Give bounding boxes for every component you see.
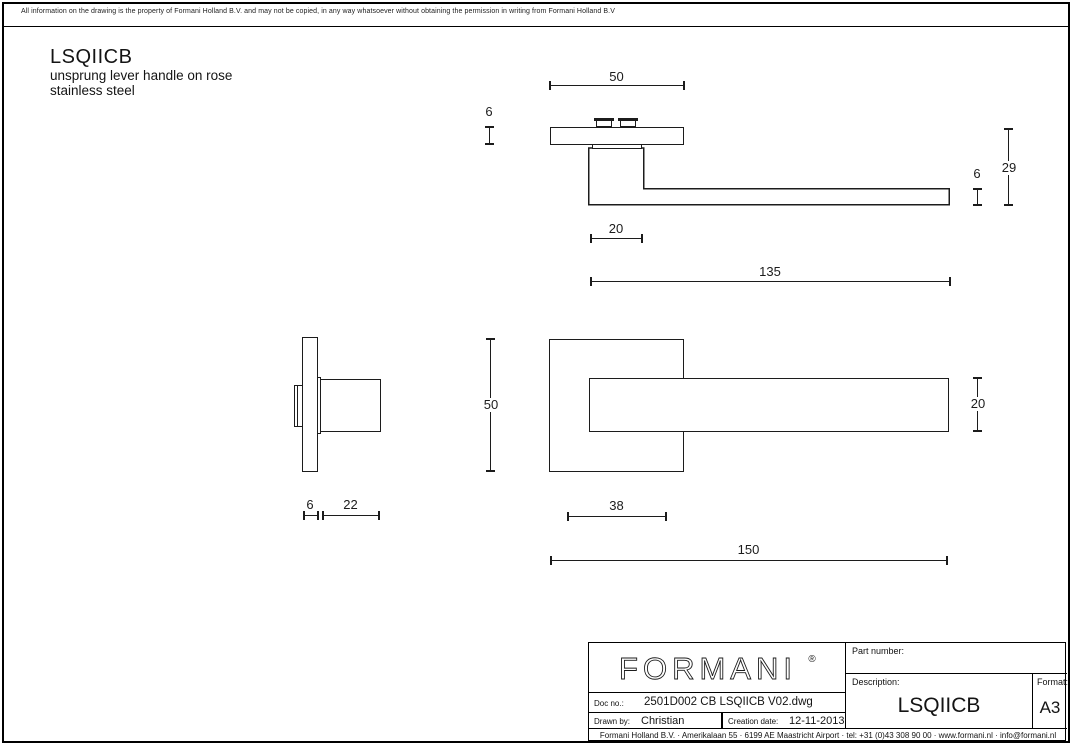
dim-line [303,515,318,516]
company-footer: Formani Holland B.V. · Amerikalaan 55 · … [589,729,1067,742]
creation-date-value: 12-11-2013 [789,715,844,727]
dim-tick [973,430,982,432]
dim-tick [949,277,951,286]
title-block: FORMANI ® Doc no.: 2501D002 CB LSQIICB V… [588,642,1066,741]
dim-tick [641,234,643,243]
drawn-by-label: Drawn by: [594,717,630,726]
dim-tick [590,277,592,286]
registered-mark: ® [808,654,816,665]
dim-label-rose-height: 50 [482,398,500,412]
logo-cell: FORMANI ® [589,643,846,693]
dim-label-rose-edge-thickness: 6 [296,498,324,512]
dim-label-neck-offset: 38 [567,499,666,513]
formani-logo: FORMANI ® [602,648,832,688]
format-label: Format: [1037,677,1068,687]
dim-label-lever-length: 135 [590,265,950,279]
format-value: A3 [1033,698,1067,718]
dim-label-total-height: 29 [1000,161,1018,175]
dim-tick [683,81,685,90]
dim-tick [378,511,380,520]
doc-no-label: Doc no.: [594,699,624,708]
dim-tick [486,338,495,340]
dim-tick [486,470,495,472]
dim-label-lever-thickness: 6 [966,167,988,181]
dim-line [489,127,490,144]
dim-label-total-length: 150 [550,543,947,557]
fixing-screw-icon [594,118,614,127]
format-cell: Format: A3 [1032,674,1067,729]
lever-front-rect [589,378,949,432]
dim-line [590,281,950,282]
dim-tick [317,511,319,520]
dim-label-neck-width: 20 [590,222,642,236]
dim-tick [973,204,982,206]
dim-tick [567,512,569,521]
dim-tick [946,556,948,565]
grip-section-edge [320,379,381,432]
dim-tick [303,511,305,520]
dim-label-grip-depth: 22 [322,498,379,512]
rose-plate-side-view [550,127,684,145]
doc-no-value: 2501D002 CB LSQIICB V02.dwg [644,696,813,708]
dim-tick [590,234,592,243]
drawn-by-row: Drawn by: Christian Creation date: 12-11… [589,713,846,729]
dim-tick [550,556,552,565]
dim-tick [1004,204,1013,206]
handle-profile-outline [0,0,1072,745]
dim-tick [485,143,494,145]
dim-tick [322,511,324,520]
creation-date-label: Creation date: [728,717,778,726]
rose-edge-view [302,337,318,472]
dim-label-rose-width: 50 [549,70,684,84]
description-cell: Description: LSQIICB [846,674,1032,729]
dim-label-rose-thickness: 6 [477,105,501,119]
part-number-label: Part number: [852,646,904,656]
doc-number-row: Doc no.: 2501D002 CB LSQIICB V02.dwg [589,693,846,713]
dim-line [549,85,684,86]
screw-body [596,121,612,127]
dim-tick [549,81,551,90]
dim-line [550,560,947,561]
screw-body [620,121,636,127]
dim-tick [665,512,667,521]
dim-tick [1004,128,1013,130]
dim-line [590,238,642,239]
spring-clip-inner-line [297,386,298,426]
drawing-sheet: All information on the drawing is the pr… [0,0,1072,745]
dim-line [977,189,978,205]
description-label: Description: [852,677,900,687]
dim-tick [973,188,982,190]
part-number-cell: Part number: [846,643,1067,674]
drawn-by-value: Christian [641,715,684,727]
spring-clip [294,385,303,427]
dim-label-grip-height: 20 [969,397,987,411]
dim-tick [973,377,982,379]
description-value: LSQIICB [846,694,1032,718]
dim-line [322,515,379,516]
fixing-screw-icon [618,118,638,127]
formani-logo-text: FORMANI [619,651,797,686]
cell-divider [721,713,723,728]
dim-tick [485,126,494,128]
dim-line [567,516,666,517]
